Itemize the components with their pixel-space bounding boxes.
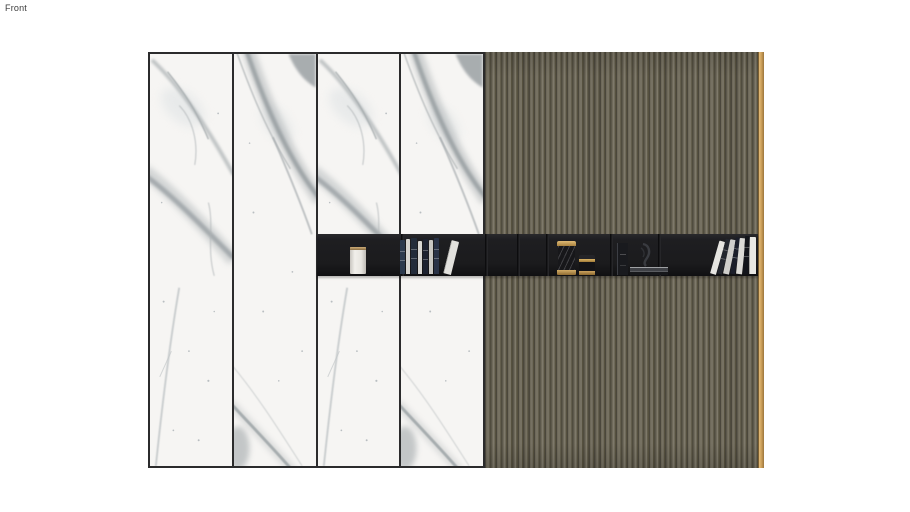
shelf-divider [546,234,549,276]
white-canister[interactable] [350,247,366,274]
feature-wall [148,52,764,468]
shelf-divider [485,234,488,276]
book-spine[interactable] [418,241,422,274]
marble-panel-1[interactable] [150,54,232,466]
jar-body [579,262,595,271]
book-spine[interactable] [400,240,405,274]
marble-panel-2[interactable] [234,54,316,466]
book-stack[interactable] [630,267,668,275]
book-spine[interactable] [406,239,410,274]
marble-vein-pattern-a [150,54,232,466]
jar-body [558,246,575,270]
shelf-divider [610,234,613,276]
right-leaning-books[interactable] [710,236,757,274]
tall-gold-jar[interactable] [557,241,576,275]
view-label: Front [5,3,27,13]
marble-vein-pattern-b [234,54,316,466]
book-spine[interactable] [423,239,428,274]
small-gold-jar[interactable] [579,255,595,275]
leaning-book[interactable] [749,237,756,274]
shelf-divider [517,234,520,276]
jar-gold-base [557,270,576,275]
stacked-book [630,271,668,275]
book-spine[interactable] [434,238,439,274]
canister-lid [350,247,366,250]
display-shelf-niche[interactable] [317,234,758,276]
left-book-row[interactable] [400,238,452,274]
book-spine[interactable] [429,240,433,274]
abstract-sculpture[interactable] [634,242,654,267]
jar-gold-base [579,271,595,275]
book-spine[interactable] [411,238,417,274]
standing-book[interactable] [617,243,628,275]
leaning-book[interactable] [443,240,459,275]
gold-trim-strip[interactable] [758,52,764,468]
